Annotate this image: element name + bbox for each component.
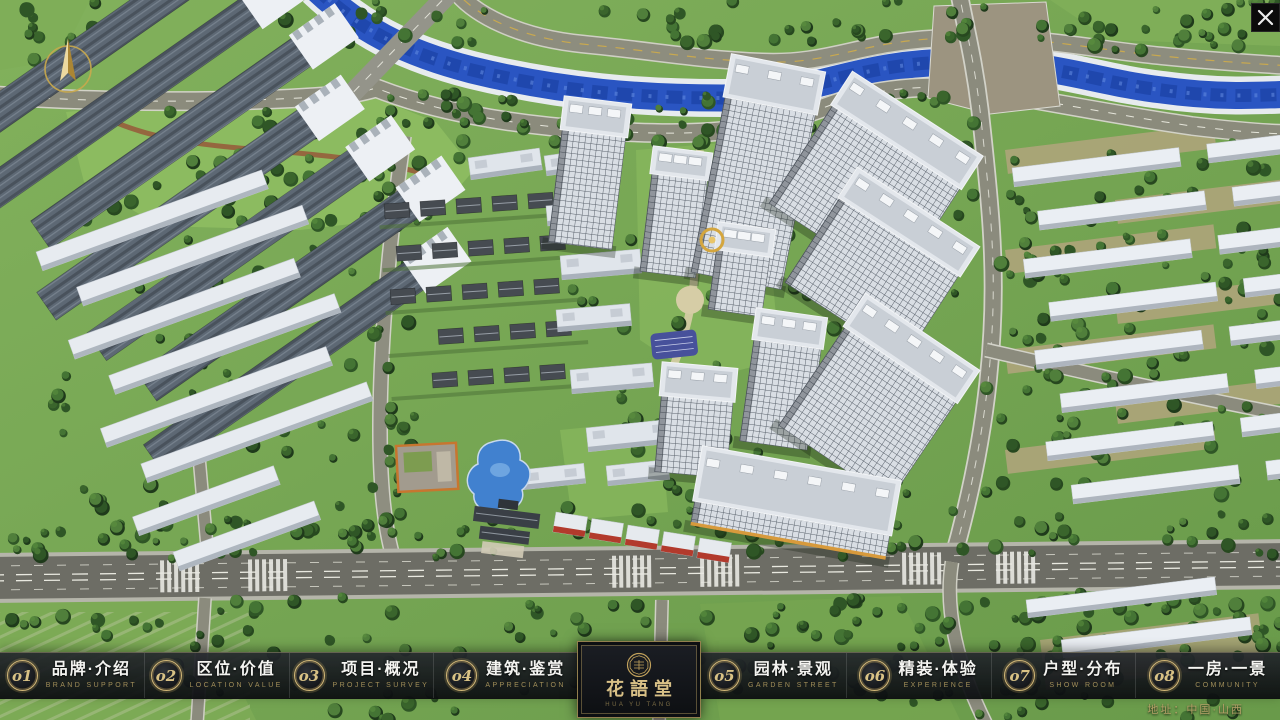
brand-logo: 花語堂 HUA YU TANG xyxy=(577,641,701,718)
nav-item-floorplans[interactable]: o7 户型·分布SHOW ROOM xyxy=(991,653,1136,698)
nav-item-number-badge: o7 xyxy=(1004,660,1035,691)
nav-group-left: o1 品牌·介绍BRAND SUPPORT o2 区位·价值LOCATION V… xyxy=(0,653,578,698)
app-window: o1 品牌·介绍BRAND SUPPORT o2 区位·价值LOCATION V… xyxy=(0,0,1280,720)
nav-item-interior-experience[interactable]: o6 精装·体验EXPERIENCE xyxy=(846,653,991,698)
nav-item-brand-intro[interactable]: o1 品牌·介绍BRAND SUPPORT xyxy=(0,653,144,698)
nav-item-location-value[interactable]: o2 区位·价值LOCATION VALUE xyxy=(144,653,289,698)
compass-icon xyxy=(36,32,100,96)
playground xyxy=(650,329,698,360)
nav-item-room-view[interactable]: o8 一房·一景COMMUNITY xyxy=(1135,653,1280,698)
nav-item-landscape[interactable]: o5 园林·景观GARDEN STREET xyxy=(702,653,846,698)
brand-subtitle: HUA YU TANG xyxy=(605,702,673,708)
nav-item-number-badge: o4 xyxy=(446,660,477,691)
close-icon xyxy=(1257,9,1274,26)
brand-name: 花語堂 xyxy=(600,681,678,699)
nav-item-number-badge: o3 xyxy=(294,660,325,691)
nav-item-project-overview[interactable]: o3 项目·概况PROJECT SURVEY xyxy=(289,653,434,698)
nav-item-number-badge: o1 xyxy=(7,660,38,691)
community-3d-map[interactable] xyxy=(0,0,1280,720)
nav-item-number-badge: o5 xyxy=(709,660,740,691)
nav-item-architecture[interactable]: o4 建筑·鉴赏APPRECIATION xyxy=(433,653,578,698)
close-button[interactable] xyxy=(1251,3,1280,32)
brand-seal-icon xyxy=(626,652,652,678)
kindergarten-building xyxy=(396,443,458,492)
nav-item-number-badge: o8 xyxy=(1149,660,1180,691)
nav-item-number-badge: o2 xyxy=(151,660,182,691)
nav-group-right: o5 园林·景观GARDEN STREET o6 精装·体验EXPERIENCE… xyxy=(702,653,1280,698)
nav-item-number-badge: o6 xyxy=(859,660,890,691)
address-text: 地址：中国·山西 xyxy=(1147,701,1244,717)
